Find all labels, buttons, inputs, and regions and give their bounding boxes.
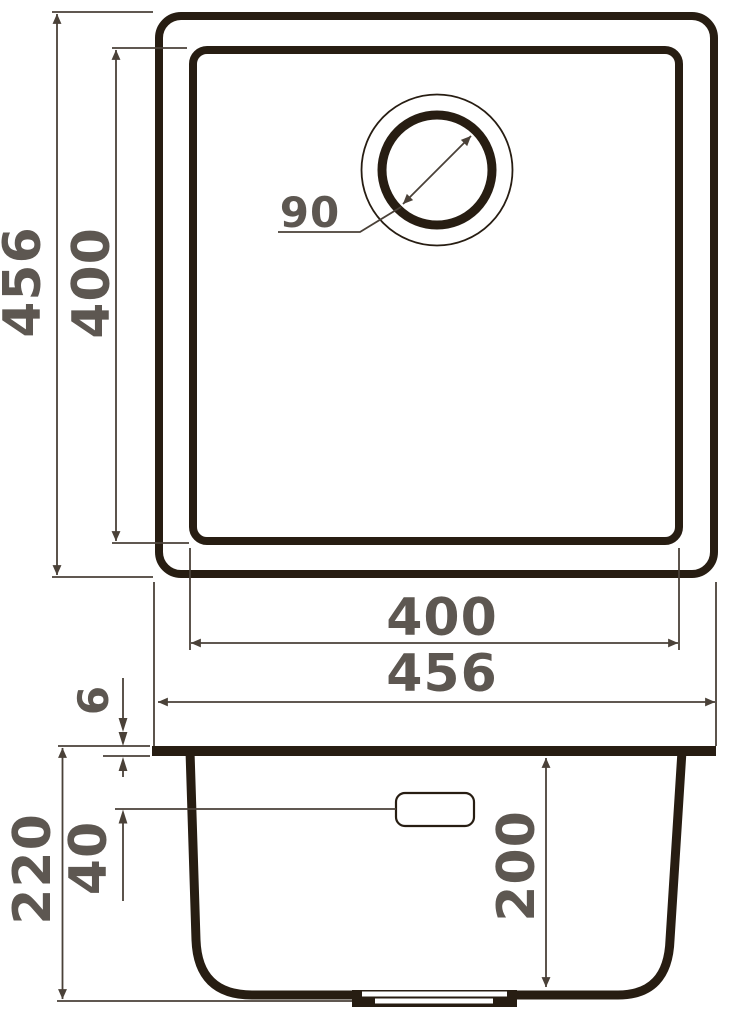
label-rim-thickness: 6 [73,685,115,715]
label-outer-width: 456 [386,648,498,700]
sink-technical-drawing: 456 400 90 400 456 6 220 40 200 [0,0,729,1019]
side-view [57,678,716,1007]
drain-fitting-slot-upper [362,992,507,997]
label-total-depth: 220 [7,813,59,925]
label-inner-width: 400 [386,592,498,644]
dim-overflow-offset-40 [119,810,128,902]
drain-diameter-arrow [403,136,471,204]
top-view-extension-lines [52,12,716,746]
label-inner-height: 400 [66,227,118,339]
label-bowl-depth: 200 [491,810,543,922]
sink-rim-section [152,746,716,756]
bowl-section-profile [190,751,682,995]
top-view [52,12,716,746]
drain-fitting-slot-lower [375,999,493,1004]
sink-bowl-outline [193,50,679,541]
overflow-opening [396,793,474,826]
label-outer-height: 456 [0,226,49,338]
sink-outer-rim-outline [159,16,714,574]
dim-rim-thickness-6 [119,678,128,777]
label-drain-diameter: 90 [280,192,340,234]
label-overflow-offset: 40 [63,821,115,895]
